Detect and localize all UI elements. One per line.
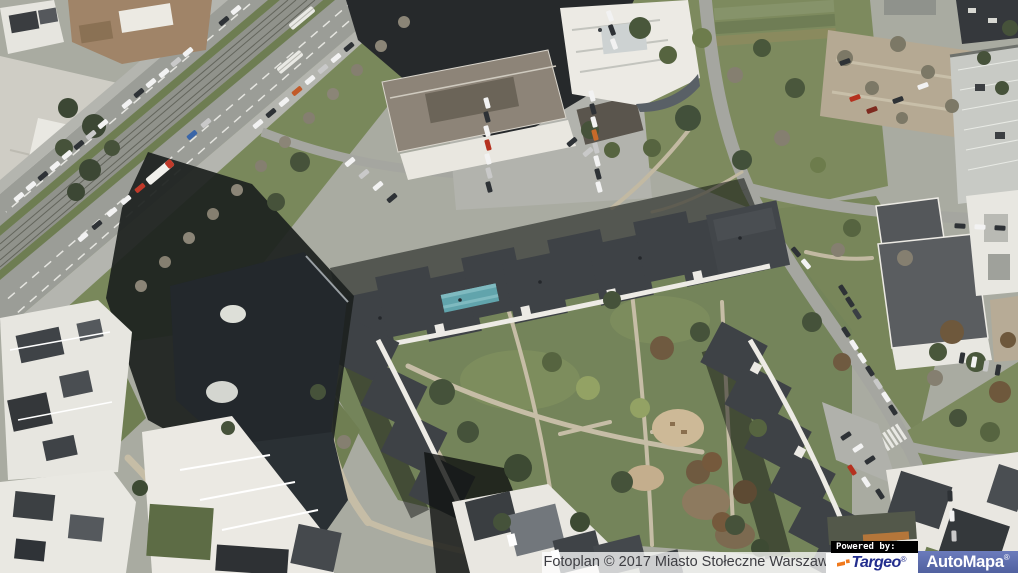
targeo-registered-mark: ® [901,556,907,564]
map-viewport[interactable]: Fotoplan © 2017 Miasto Stołeczne Warszaw… [0,0,1018,573]
metal-roof-hall [950,46,1018,204]
automapa-logo[interactable]: AutoMapa ® [918,551,1018,573]
automapa-logo-text: AutoMapa [926,554,1003,571]
attribution-text: Fotoplan © 2017 Miasto Stołeczne Warszaw… [543,554,836,570]
powered-by-strip: Powered by: [831,541,918,553]
powered-by-label: Powered by: [836,542,896,552]
targeo-logo[interactable]: Targeo ® [826,553,918,573]
map-attribution: Fotoplan © 2017 Miasto Stołeczne Warszaw… [542,552,838,573]
targeo-mark-icon [837,556,850,570]
automapa-registered-mark: ® [1004,554,1010,562]
targeo-logo-text: Targeo [851,555,900,571]
office-building [560,0,700,112]
aerial-imagery [0,0,1018,573]
